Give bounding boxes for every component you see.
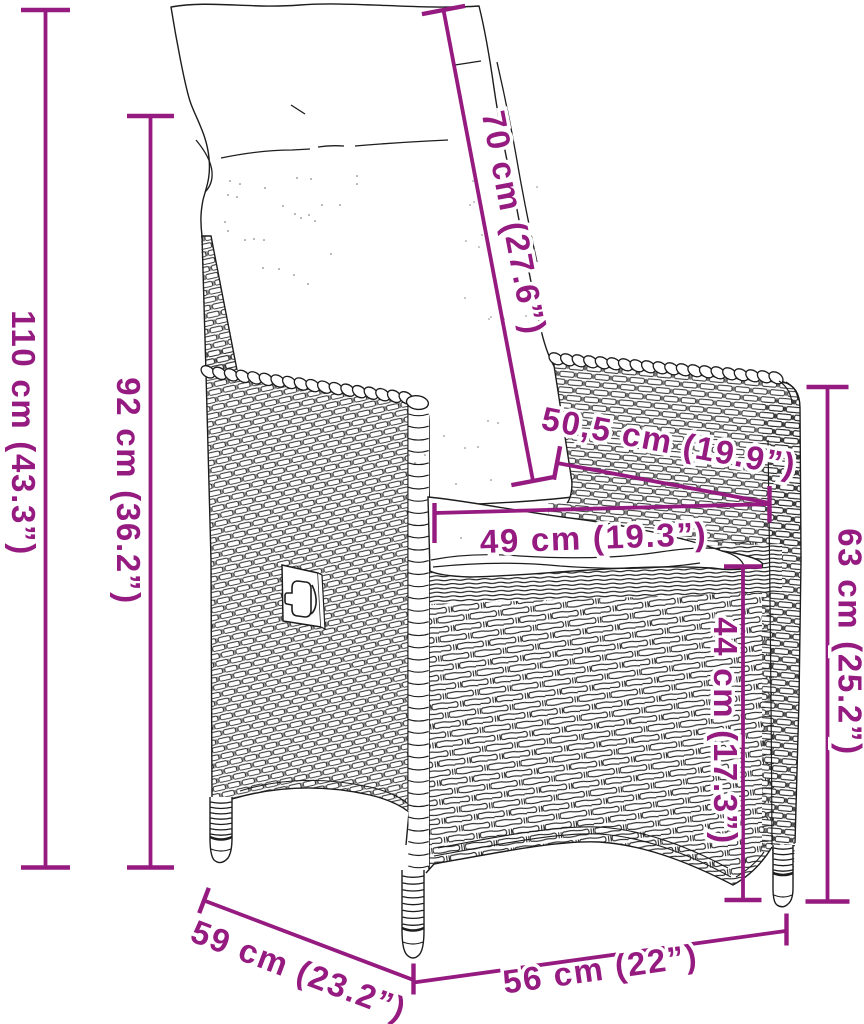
- svg-text:92 cm (36.2”): 92 cm (36.2”): [110, 377, 147, 605]
- svg-text:110 cm (43.3”): 110 cm (43.3”): [5, 310, 42, 556]
- svg-text:44 cm (17.3”): 44 cm (17.3”): [707, 617, 744, 845]
- svg-text:56 cm (22”): 56 cm (22”): [500, 937, 700, 1001]
- svg-text:63 cm (25.2”): 63 cm (25.2”): [832, 528, 864, 756]
